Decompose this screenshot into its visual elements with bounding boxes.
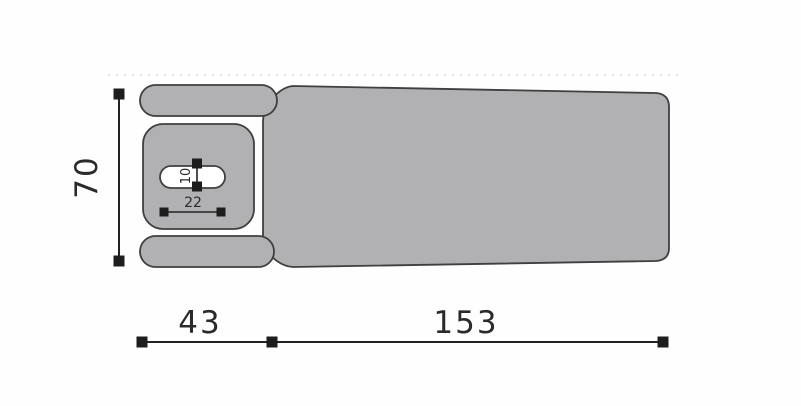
dimension-bottom-widths: 43 153	[137, 305, 669, 348]
dimension-label-body-width: 153	[433, 305, 498, 341]
dimension-label-height: 70	[69, 155, 105, 198]
dimension-marker	[160, 208, 169, 217]
diagram-canvas: 70 43 153 10 22	[0, 0, 801, 406]
main-body-shape	[263, 86, 669, 267]
dimension-marker	[217, 208, 226, 217]
dimension-marker	[114, 256, 125, 267]
dimension-marker	[137, 337, 148, 348]
dimension-total-height: 70	[69, 89, 125, 267]
dimension-marker	[658, 337, 669, 348]
dimension-label-hole-width: 22	[184, 195, 202, 211]
dimension-marker	[267, 337, 278, 348]
dimension-marker	[114, 89, 125, 100]
dimension-label-head-width: 43	[178, 305, 221, 341]
armrest-top-shape	[140, 85, 277, 116]
table-dimension-drawing: 70 43 153 10 22	[0, 0, 801, 406]
dimension-label-hole-height: 10	[179, 168, 194, 185]
dimension-marker	[192, 159, 202, 169]
armrest-bottom-shape	[140, 236, 274, 267]
